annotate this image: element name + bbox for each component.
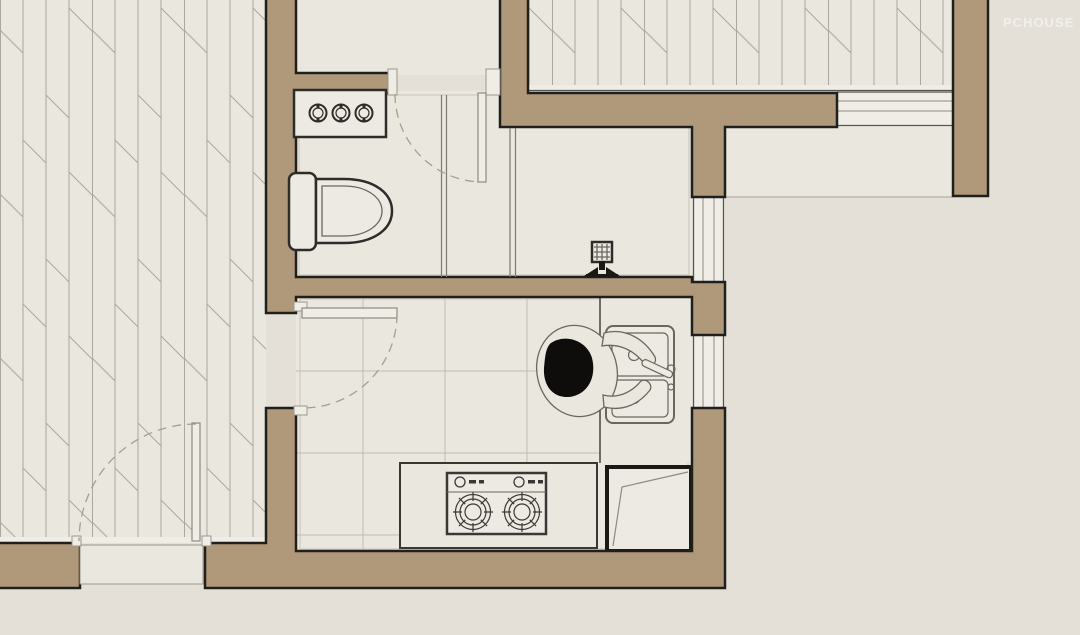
right-room-floor: [725, 127, 953, 197]
window-kitchen-east: [692, 335, 725, 408]
bathroom-vanity: [294, 90, 386, 137]
door-leaf: [192, 423, 200, 541]
door-leaf: [478, 93, 486, 182]
wood-hatch-left-room: [0, 0, 266, 537]
window-south: [837, 91, 953, 127]
wall-bottom-left: [0, 543, 80, 588]
wall-right: [953, 0, 988, 196]
refrigerator: [607, 467, 691, 551]
watermark: PCHOUSE: [1003, 15, 1074, 30]
wood-hatch-top-room: [528, 0, 953, 85]
floor-plan-drawing: [0, 0, 1080, 635]
door-leaf: [302, 308, 397, 318]
floor-plan-page: PCHOUSE: [0, 0, 1080, 635]
door-jamb: [486, 69, 500, 95]
person-head: [544, 339, 593, 397]
toilet-tank: [289, 173, 316, 250]
two-burner-gas-stove: [447, 473, 546, 534]
door-jamb: [202, 536, 211, 546]
door-jamb: [294, 406, 307, 415]
window-shower-east: [692, 197, 725, 282]
door-sill: [80, 545, 203, 584]
door-jamb: [388, 69, 397, 95]
hallway-floor: [296, 0, 500, 75]
toilet-bowl: [316, 179, 392, 243]
floor-gap-strip-2: [528, 85, 953, 90]
